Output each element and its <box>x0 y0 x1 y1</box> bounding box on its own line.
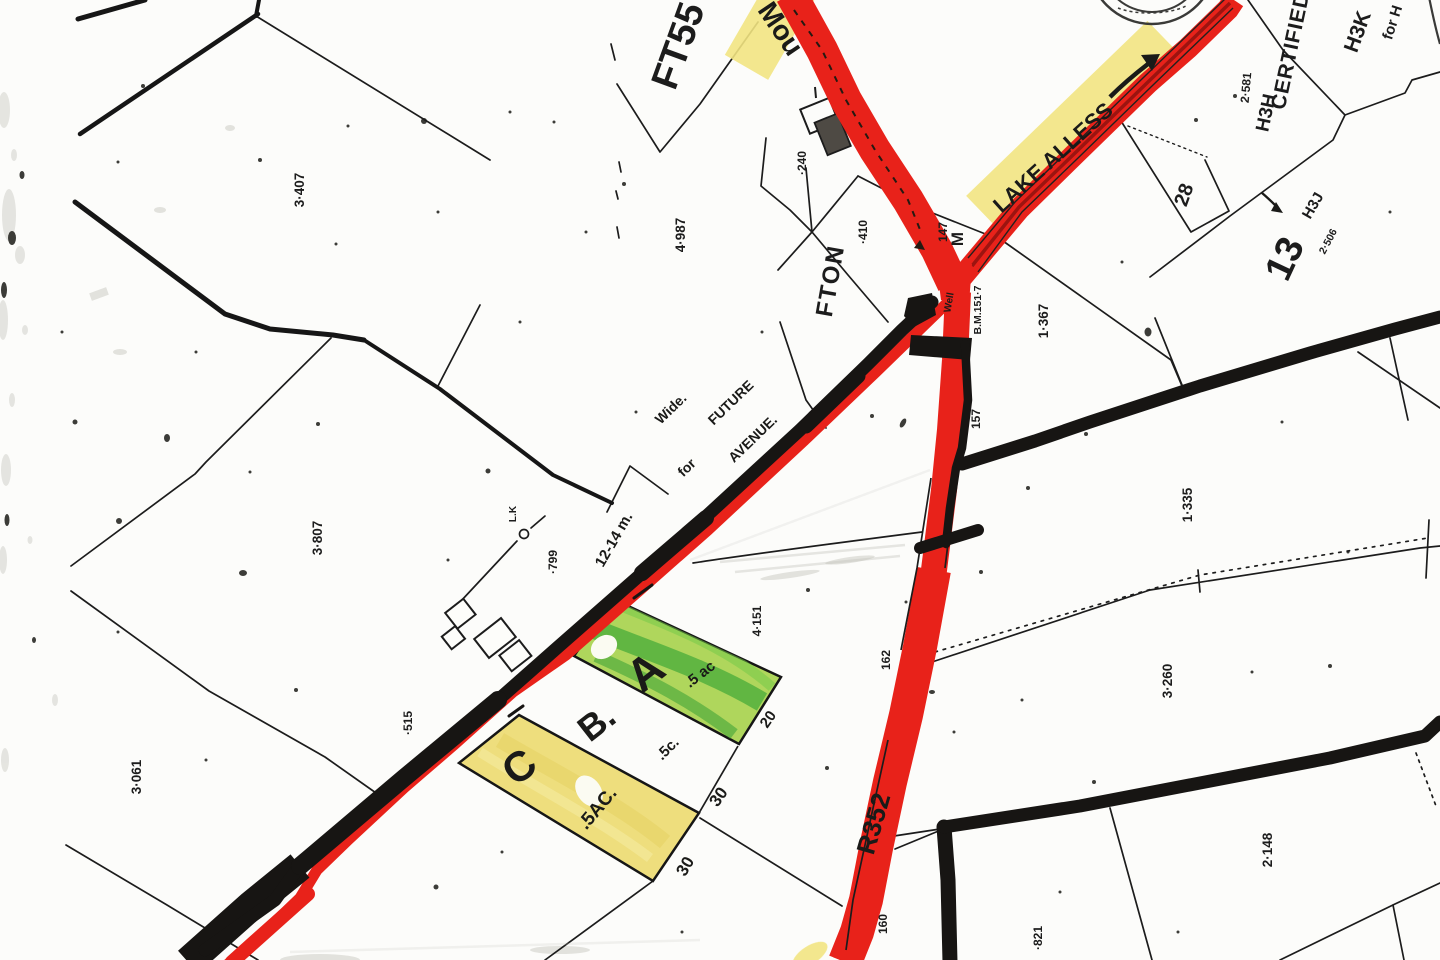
svg-text:·821: ·821 <box>1031 926 1045 950</box>
svg-text:2·148: 2·148 <box>1260 832 1275 867</box>
svg-text:M: M <box>948 232 967 246</box>
svg-text:157: 157 <box>969 409 983 429</box>
svg-text:3·260: 3·260 <box>1160 664 1175 699</box>
svg-text:L.K: L.K <box>508 505 519 522</box>
svg-text:2·581: 2·581 <box>1238 71 1255 103</box>
svg-text:3·407: 3·407 <box>292 173 307 208</box>
svg-text:4·987: 4·987 <box>673 218 688 253</box>
svg-text:1·335: 1·335 <box>1180 487 1195 522</box>
svg-text:160: 160 <box>876 914 890 934</box>
svg-text:·799: ·799 <box>546 550 560 574</box>
svg-text:·410: ·410 <box>856 220 870 244</box>
svg-text:B.M.151·7: B.M.151·7 <box>972 285 984 334</box>
svg-text:3·807: 3·807 <box>310 521 325 556</box>
svg-text:3·061: 3·061 <box>129 759 144 794</box>
svg-text:·240: ·240 <box>795 151 809 175</box>
svg-text:4·151: 4·151 <box>750 605 764 636</box>
svg-text:1·367: 1·367 <box>1036 304 1051 339</box>
svg-text:162: 162 <box>879 650 893 670</box>
svg-text:·515: ·515 <box>401 711 415 735</box>
